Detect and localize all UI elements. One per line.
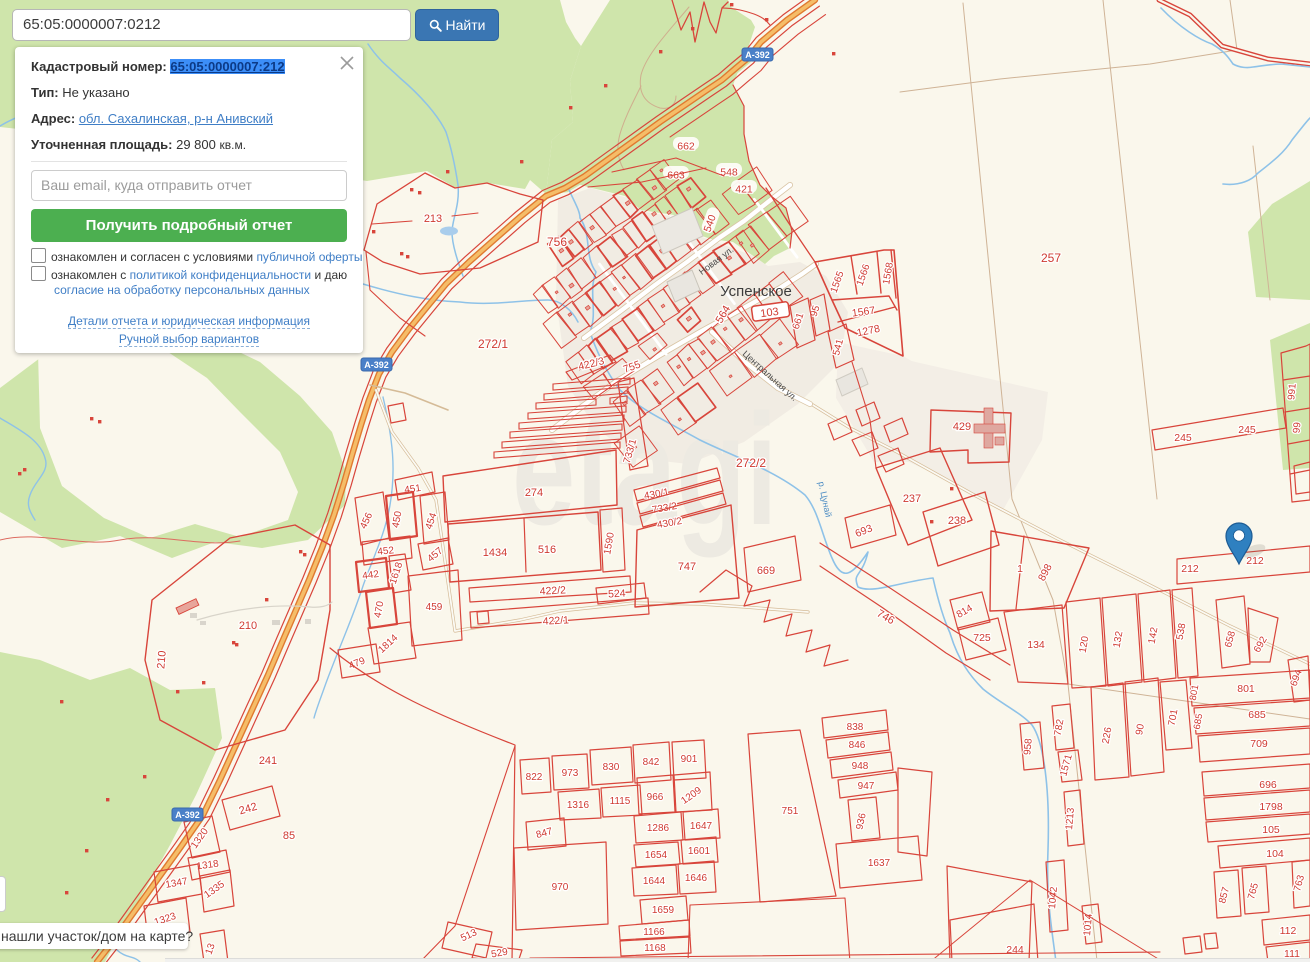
svg-text:970: 970 (552, 882, 569, 893)
svg-text:548: 548 (720, 167, 738, 179)
svg-text:85: 85 (283, 830, 295, 842)
svg-text:210: 210 (239, 620, 257, 632)
svg-text:112: 112 (1280, 925, 1297, 937)
svg-text:274: 274 (525, 487, 543, 499)
svg-text:1434: 1434 (483, 547, 507, 559)
svg-text:1647: 1647 (690, 821, 713, 832)
svg-text:238: 238 (948, 515, 966, 527)
svg-text:429: 429 (953, 421, 971, 433)
svg-text:422/1: 422/1 (542, 614, 569, 627)
svg-text:991: 991 (1286, 383, 1298, 401)
svg-text:А-392: А-392 (175, 810, 200, 820)
svg-text:1637: 1637 (868, 858, 891, 869)
svg-text:105: 105 (1262, 824, 1280, 836)
svg-text:245: 245 (1174, 432, 1192, 444)
svg-text:709: 709 (1250, 738, 1268, 750)
svg-text:1166: 1166 (643, 927, 665, 938)
svg-text:1659: 1659 (652, 905, 675, 916)
svg-text:210: 210 (155, 650, 169, 669)
svg-text:1316: 1316 (567, 800, 590, 811)
svg-text:103: 103 (760, 306, 780, 320)
svg-text:213: 213 (424, 213, 442, 225)
svg-text:1654: 1654 (645, 850, 668, 861)
svg-text:422/2: 422/2 (539, 584, 566, 597)
svg-text:838: 838 (847, 722, 864, 733)
svg-text:А-392: А-392 (745, 50, 770, 60)
svg-text:947: 947 (858, 781, 875, 792)
svg-text:104: 104 (1266, 848, 1284, 860)
svg-text:1: 1 (1017, 563, 1023, 575)
svg-text:212: 212 (1181, 563, 1199, 575)
svg-text:272/1: 272/1 (478, 337, 508, 351)
svg-text:966: 966 (647, 792, 664, 803)
svg-text:257: 257 (1041, 251, 1061, 265)
svg-text:244: 244 (1006, 944, 1024, 956)
svg-text:662: 662 (677, 141, 695, 153)
svg-text:1601: 1601 (688, 846, 711, 857)
svg-text:1213: 1213 (1064, 807, 1077, 831)
svg-text:134: 134 (1027, 639, 1045, 651)
svg-text:973: 973 (562, 768, 579, 779)
svg-text:846: 846 (849, 740, 866, 751)
svg-text:669: 669 (757, 565, 775, 577)
svg-text:1286: 1286 (647, 823, 670, 834)
svg-text:Успенское: Успенское (720, 283, 792, 300)
svg-text:1115: 1115 (610, 796, 631, 807)
svg-text:524: 524 (608, 588, 626, 601)
svg-text:901: 901 (681, 754, 698, 765)
svg-text:1646: 1646 (685, 873, 708, 884)
svg-text:958: 958 (1022, 738, 1034, 756)
svg-text:241: 241 (259, 755, 277, 767)
svg-text:822: 822 (526, 772, 543, 783)
svg-text:1168: 1168 (644, 943, 666, 954)
svg-text:756: 756 (547, 235, 567, 249)
svg-text:459: 459 (426, 602, 443, 613)
svg-text:245: 245 (1238, 424, 1256, 436)
svg-text:801: 801 (1237, 683, 1255, 695)
svg-text:948: 948 (852, 761, 869, 772)
svg-text:272/2: 272/2 (736, 456, 766, 470)
svg-text:237: 237 (903, 493, 921, 505)
svg-text:А-392: А-392 (364, 360, 389, 370)
svg-text:751: 751 (782, 806, 799, 817)
svg-text:99: 99 (1292, 421, 1304, 433)
svg-text:1644: 1644 (643, 876, 666, 887)
svg-text:685: 685 (1248, 709, 1266, 721)
svg-text:696: 696 (1259, 779, 1277, 791)
svg-text:516: 516 (538, 544, 556, 556)
svg-text:830: 830 (603, 762, 620, 773)
svg-text:747: 747 (678, 561, 696, 573)
svg-text:725: 725 (973, 632, 991, 644)
svg-text:1798: 1798 (1259, 801, 1283, 813)
svg-text:842: 842 (643, 757, 660, 768)
svg-text:421: 421 (735, 184, 753, 196)
